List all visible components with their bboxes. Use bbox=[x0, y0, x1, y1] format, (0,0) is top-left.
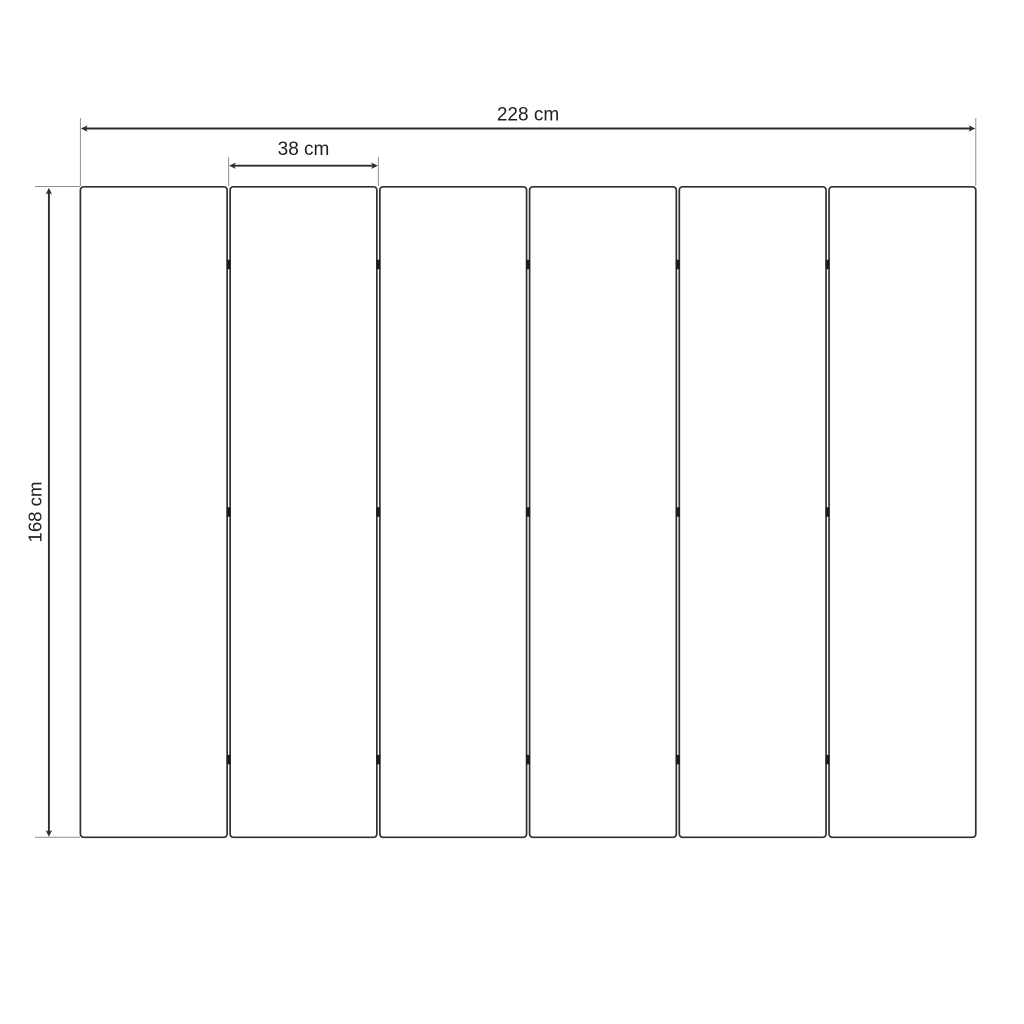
svg-text:168 cm: 168 cm bbox=[24, 482, 45, 543]
svg-text:38 cm: 38 cm bbox=[278, 139, 330, 160]
svg-text:228 cm: 228 cm bbox=[497, 104, 559, 125]
